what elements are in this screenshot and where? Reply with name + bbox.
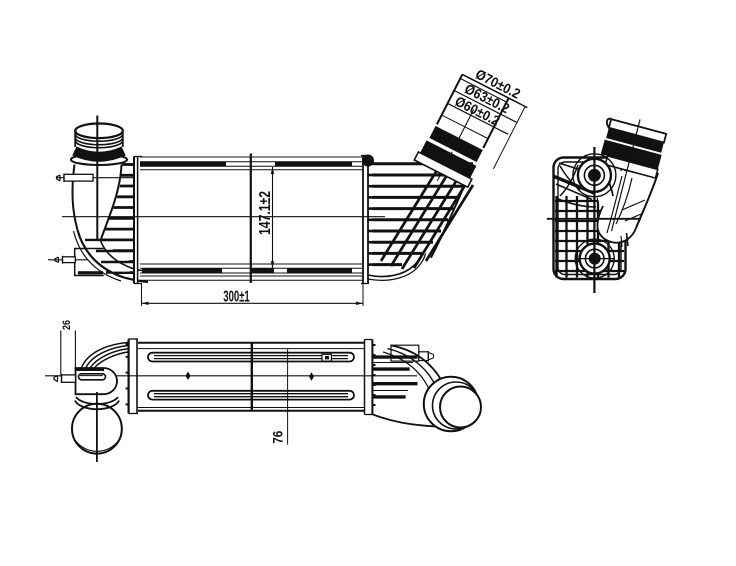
svg-text:147.1±2: 147.1±2	[257, 191, 274, 235]
svg-text:300±1: 300±1	[223, 289, 250, 306]
svg-text:76: 76	[270, 431, 286, 444]
svg-text:26: 26	[61, 320, 73, 330]
